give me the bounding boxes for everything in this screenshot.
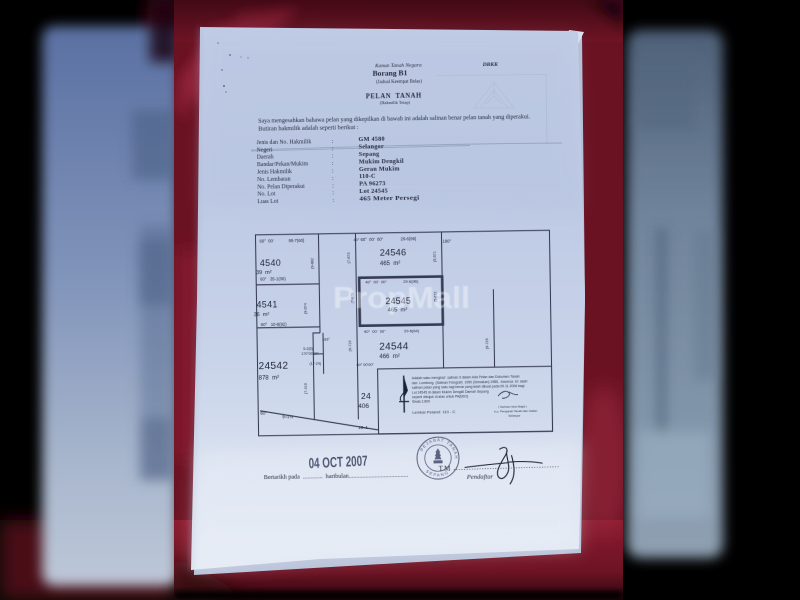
svg-text:5-2(5): 5-2(5) <box>303 347 313 351</box>
svg-text:4541: 4541 <box>256 300 277 310</box>
svg-text:36 m²: 36 m² <box>254 312 270 318</box>
svg-text:60° 00'00": 60° 00'00" <box>356 363 374 367</box>
svg-text:9=1¾: 9=1¾ <box>282 414 293 419</box>
svg-text:24546: 24546 <box>380 248 407 258</box>
svg-text:T.M: T.M <box>439 465 452 473</box>
svg-text:Pendaftar: Pendaftar <box>466 473 494 480</box>
svg-text:Lembar Pelandi 110 - C: Lembar Pelandi 110 - C <box>412 409 455 415</box>
svg-text:110-C: 110-C <box>359 173 376 180</box>
svg-text:(17-24): (17-24) <box>309 362 321 366</box>
svg-text:60° 10-8(92): 60° 10-8(92) <box>261 322 287 327</box>
svg-text:29-6(64): 29-6(64) <box>404 328 420 333</box>
svg-text:90° 00' 00": 90° 00' 00" <box>364 329 386 334</box>
svg-text:Daerah: Daerah <box>257 155 274 161</box>
svg-text:40°: 40° <box>354 238 360 242</box>
svg-text:(5-671: (5-671 <box>433 251 437 262</box>
svg-text:60° 00' 00": 60° 00' 00" <box>361 237 384 242</box>
svg-text:465 m²: 465 m² <box>380 261 400 267</box>
svg-text:39 m²: 39 m² <box>256 270 272 276</box>
svg-text:Selangor: Selangor <box>508 413 520 417</box>
svg-text:(9-674: (9-674 <box>304 303 308 314</box>
svg-text:04 OCT 2007: 04 OCT 2007 <box>308 454 368 473</box>
svg-text:GM 4580: GM 4580 <box>358 136 384 143</box>
svg-text:4540: 4540 <box>260 258 281 268</box>
svg-text:28=1: 28=1 <box>358 425 368 430</box>
svg-text:465 Meter Persegi: 465 Meter Persegi <box>359 195 419 203</box>
svg-text:(9-719: (9-719 <box>348 340 352 351</box>
svg-text:Jenis Hakmilik: Jenis Hakmilik <box>257 169 292 176</box>
svg-text:PELAN TANAH: PELAN TANAH <box>366 90 422 100</box>
svg-text:24542: 24542 <box>258 361 288 372</box>
svg-text:406: 406 <box>358 403 369 410</box>
svg-text:Selangor: Selangor <box>359 143 384 150</box>
svg-text:(7-419: (7-419 <box>304 383 308 394</box>
svg-text:(Jadual Keempat Belas): (Jadual Keempat Belas) <box>376 79 422 85</box>
svg-text:(9-882: (9-882 <box>310 258 314 269</box>
svg-text:878 m²: 878 m² <box>259 376 279 382</box>
svg-text:No. Pelan Diperakui: No. Pelan Diperakui <box>257 184 305 191</box>
svg-text:(Hakmilik Tetap): (Hakmilik Tetap) <box>380 100 411 105</box>
svg-text:60° 00': 60° 00' <box>260 239 274 244</box>
svg-text:Luas Lot: Luas Lot <box>257 199 278 205</box>
svg-text:DBKK: DBKK <box>482 62 500 68</box>
svg-text:180°: 180° <box>443 239 452 244</box>
svg-text:(9-729: (9-729 <box>485 338 489 349</box>
svg-text:60°: 60° <box>260 411 267 416</box>
svg-text:Bandar/Pekan/Mukim: Bandar/Pekan/Mukim <box>257 161 309 168</box>
svg-text:Jenis dan No. Hakmilik: Jenis dan No. Hakmilik <box>256 139 311 146</box>
svg-text:Negeri: Negeri <box>257 147 273 153</box>
svg-text:24544: 24544 <box>379 341 409 352</box>
svg-text:95-7(60): 95-7(60) <box>289 238 306 243</box>
svg-text:PropMall: PropMall <box>333 280 470 315</box>
svg-text:Skala 1:800: Skala 1:800 <box>412 400 430 404</box>
svg-text:29-6(96): 29-6(96) <box>401 236 418 241</box>
svg-text:60° 35-1(06): 60° 35-1(06) <box>260 276 286 281</box>
svg-text:(7-673: (7-673 <box>347 252 351 263</box>
svg-text:No. Lot: No. Lot <box>257 192 276 198</box>
svg-text:24: 24 <box>361 391 371 401</box>
svg-text:170°00'00": 170°00'00" <box>301 352 319 356</box>
svg-text:PA 96273: PA 96273 <box>359 180 386 187</box>
svg-text:466 m²: 466 m² <box>379 354 399 360</box>
svg-text:No. Lembaran: No. Lembaran <box>257 177 291 184</box>
svg-text:Lot 24545: Lot 24545 <box>359 188 388 195</box>
svg-text:183°: 183° <box>322 338 330 342</box>
svg-text:Geran Mukim: Geran Mukim <box>359 165 400 173</box>
svg-text:Sepang: Sepang <box>359 151 381 158</box>
svg-text:Borang B1: Borang B1 <box>372 68 407 78</box>
